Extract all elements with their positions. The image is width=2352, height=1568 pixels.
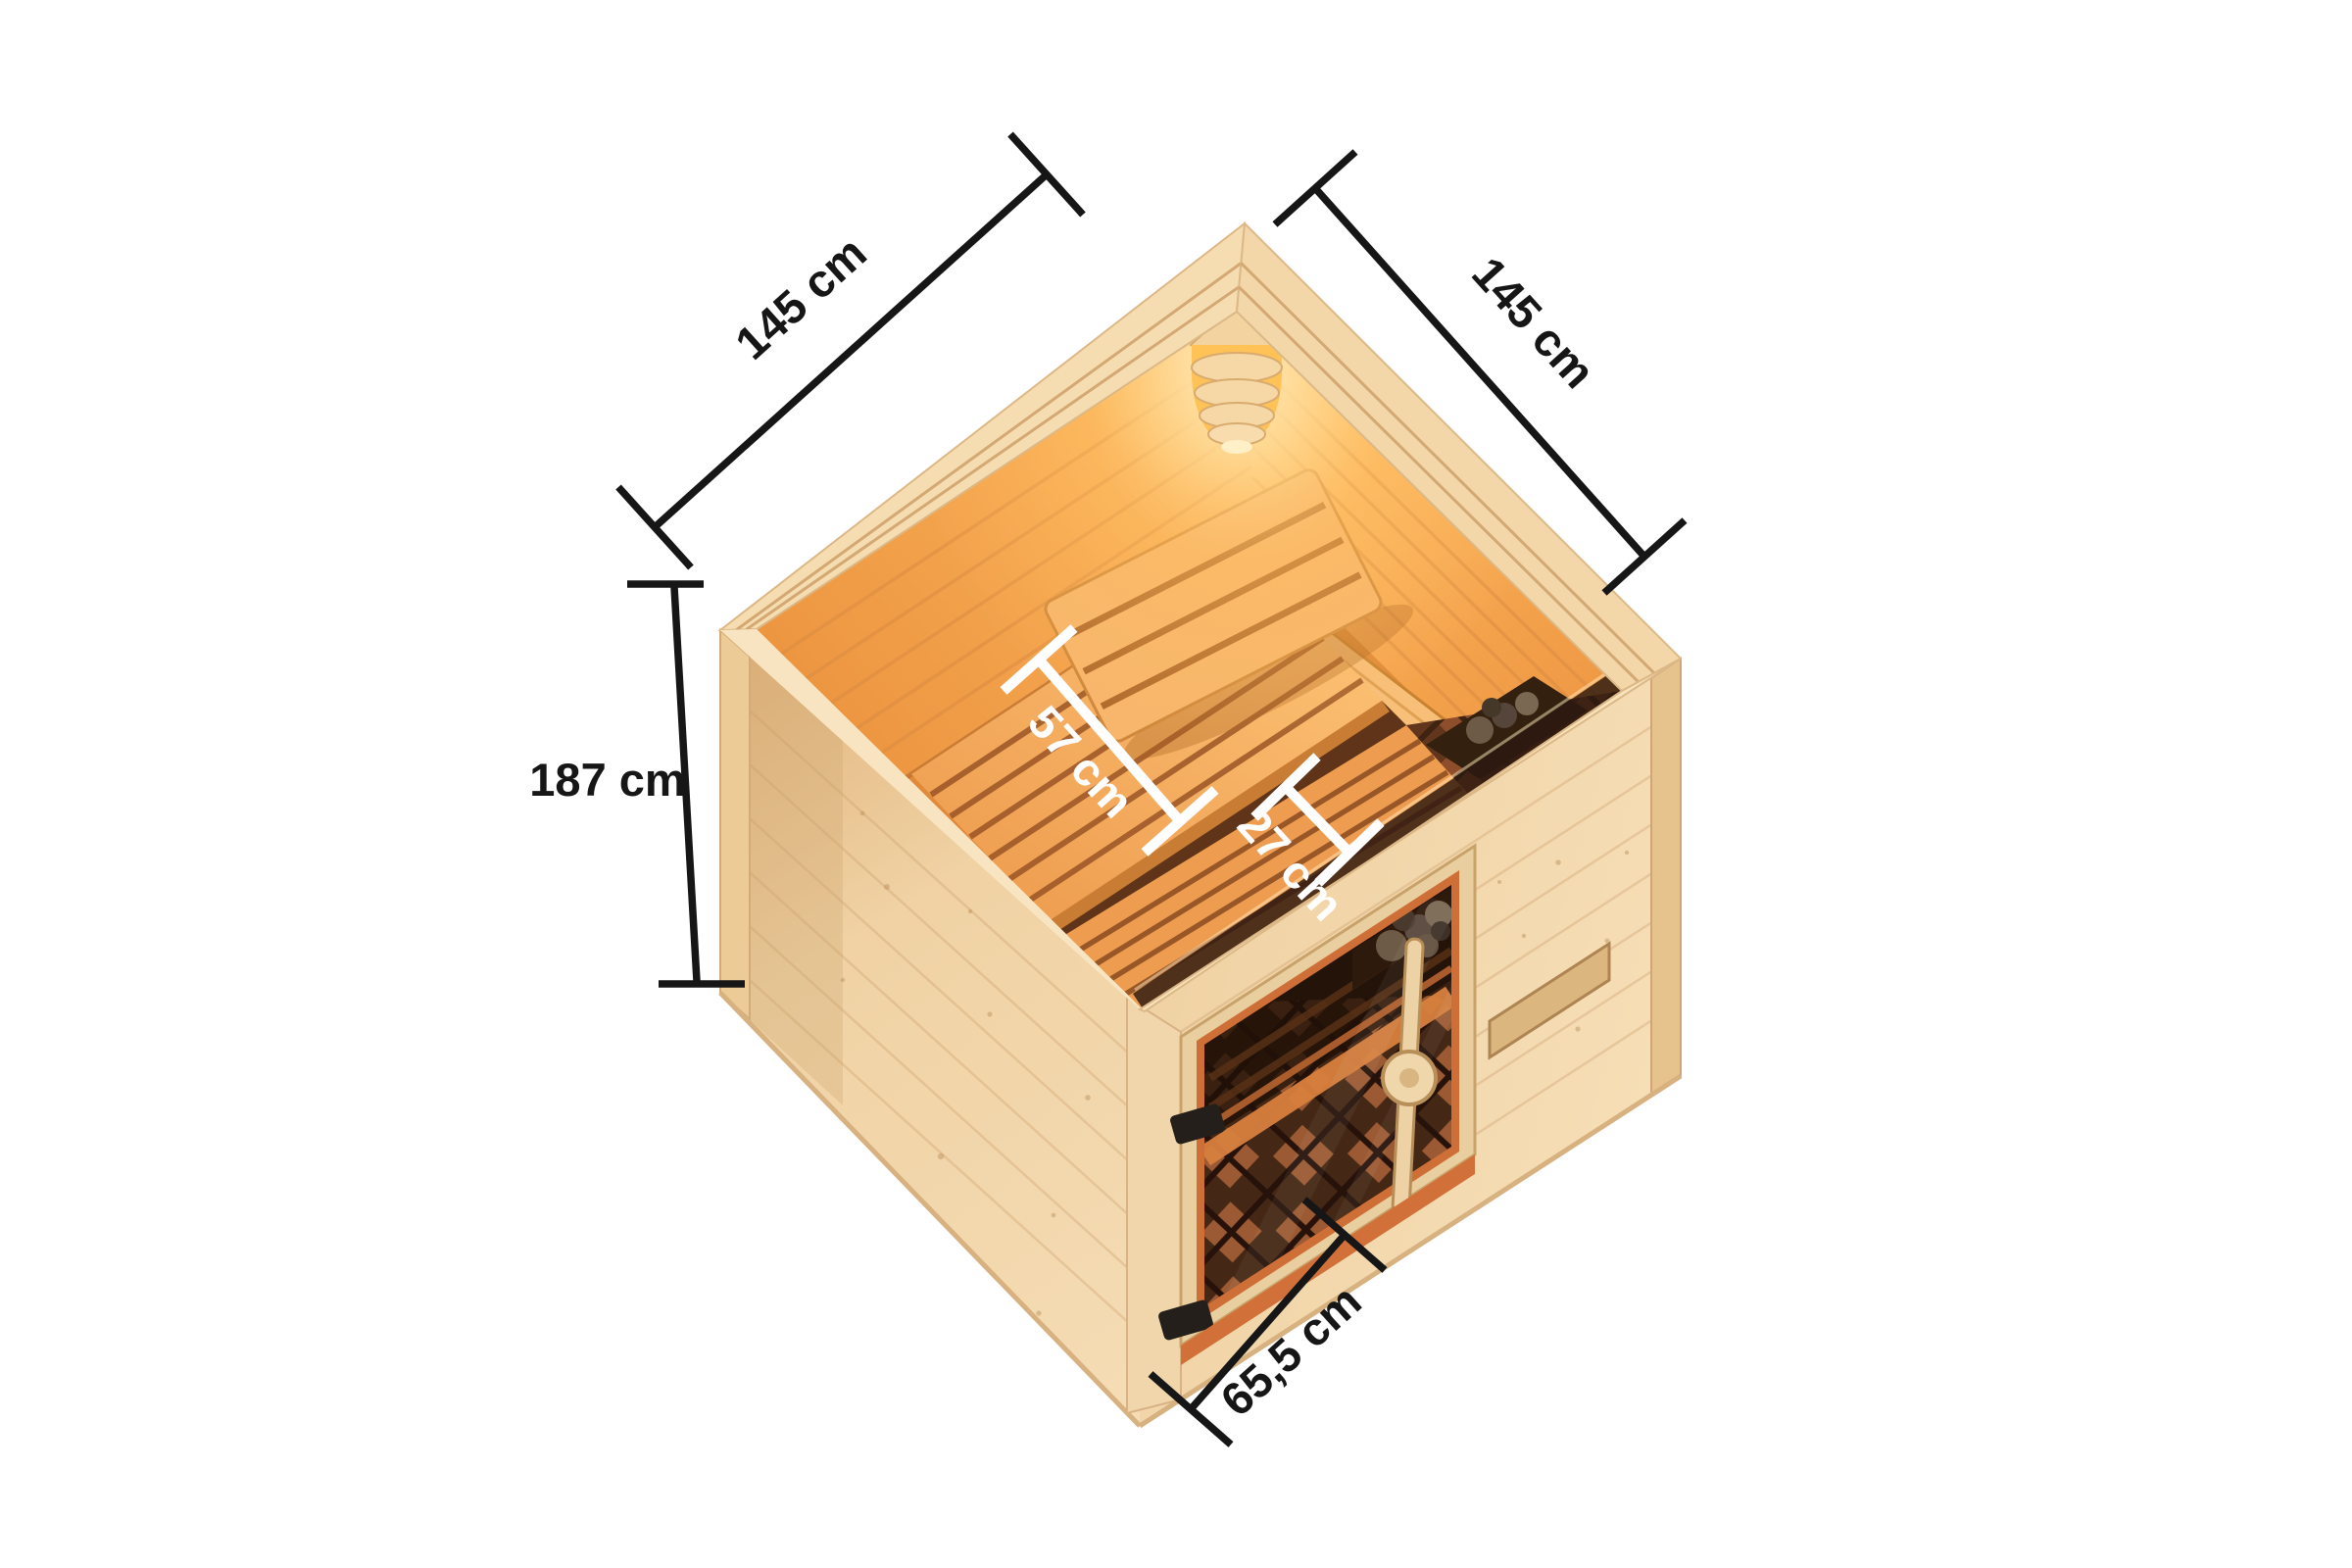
dim-label-height: 187 cm (529, 754, 685, 806)
left-corner-batten (720, 630, 750, 1019)
dimension-height: 187 cm (529, 584, 745, 984)
front-corner-post (1127, 998, 1181, 1413)
right-corner-batten (1651, 659, 1681, 1096)
sauna-dimension-illustration: 145 cm 145 cm 187 cm 57 cm 27 cm 65,5 cm (0, 0, 2352, 1568)
product-image-canvas: 145 cm 145 cm 187 cm 57 cm 27 cm 65,5 cm (0, 0, 2352, 1568)
